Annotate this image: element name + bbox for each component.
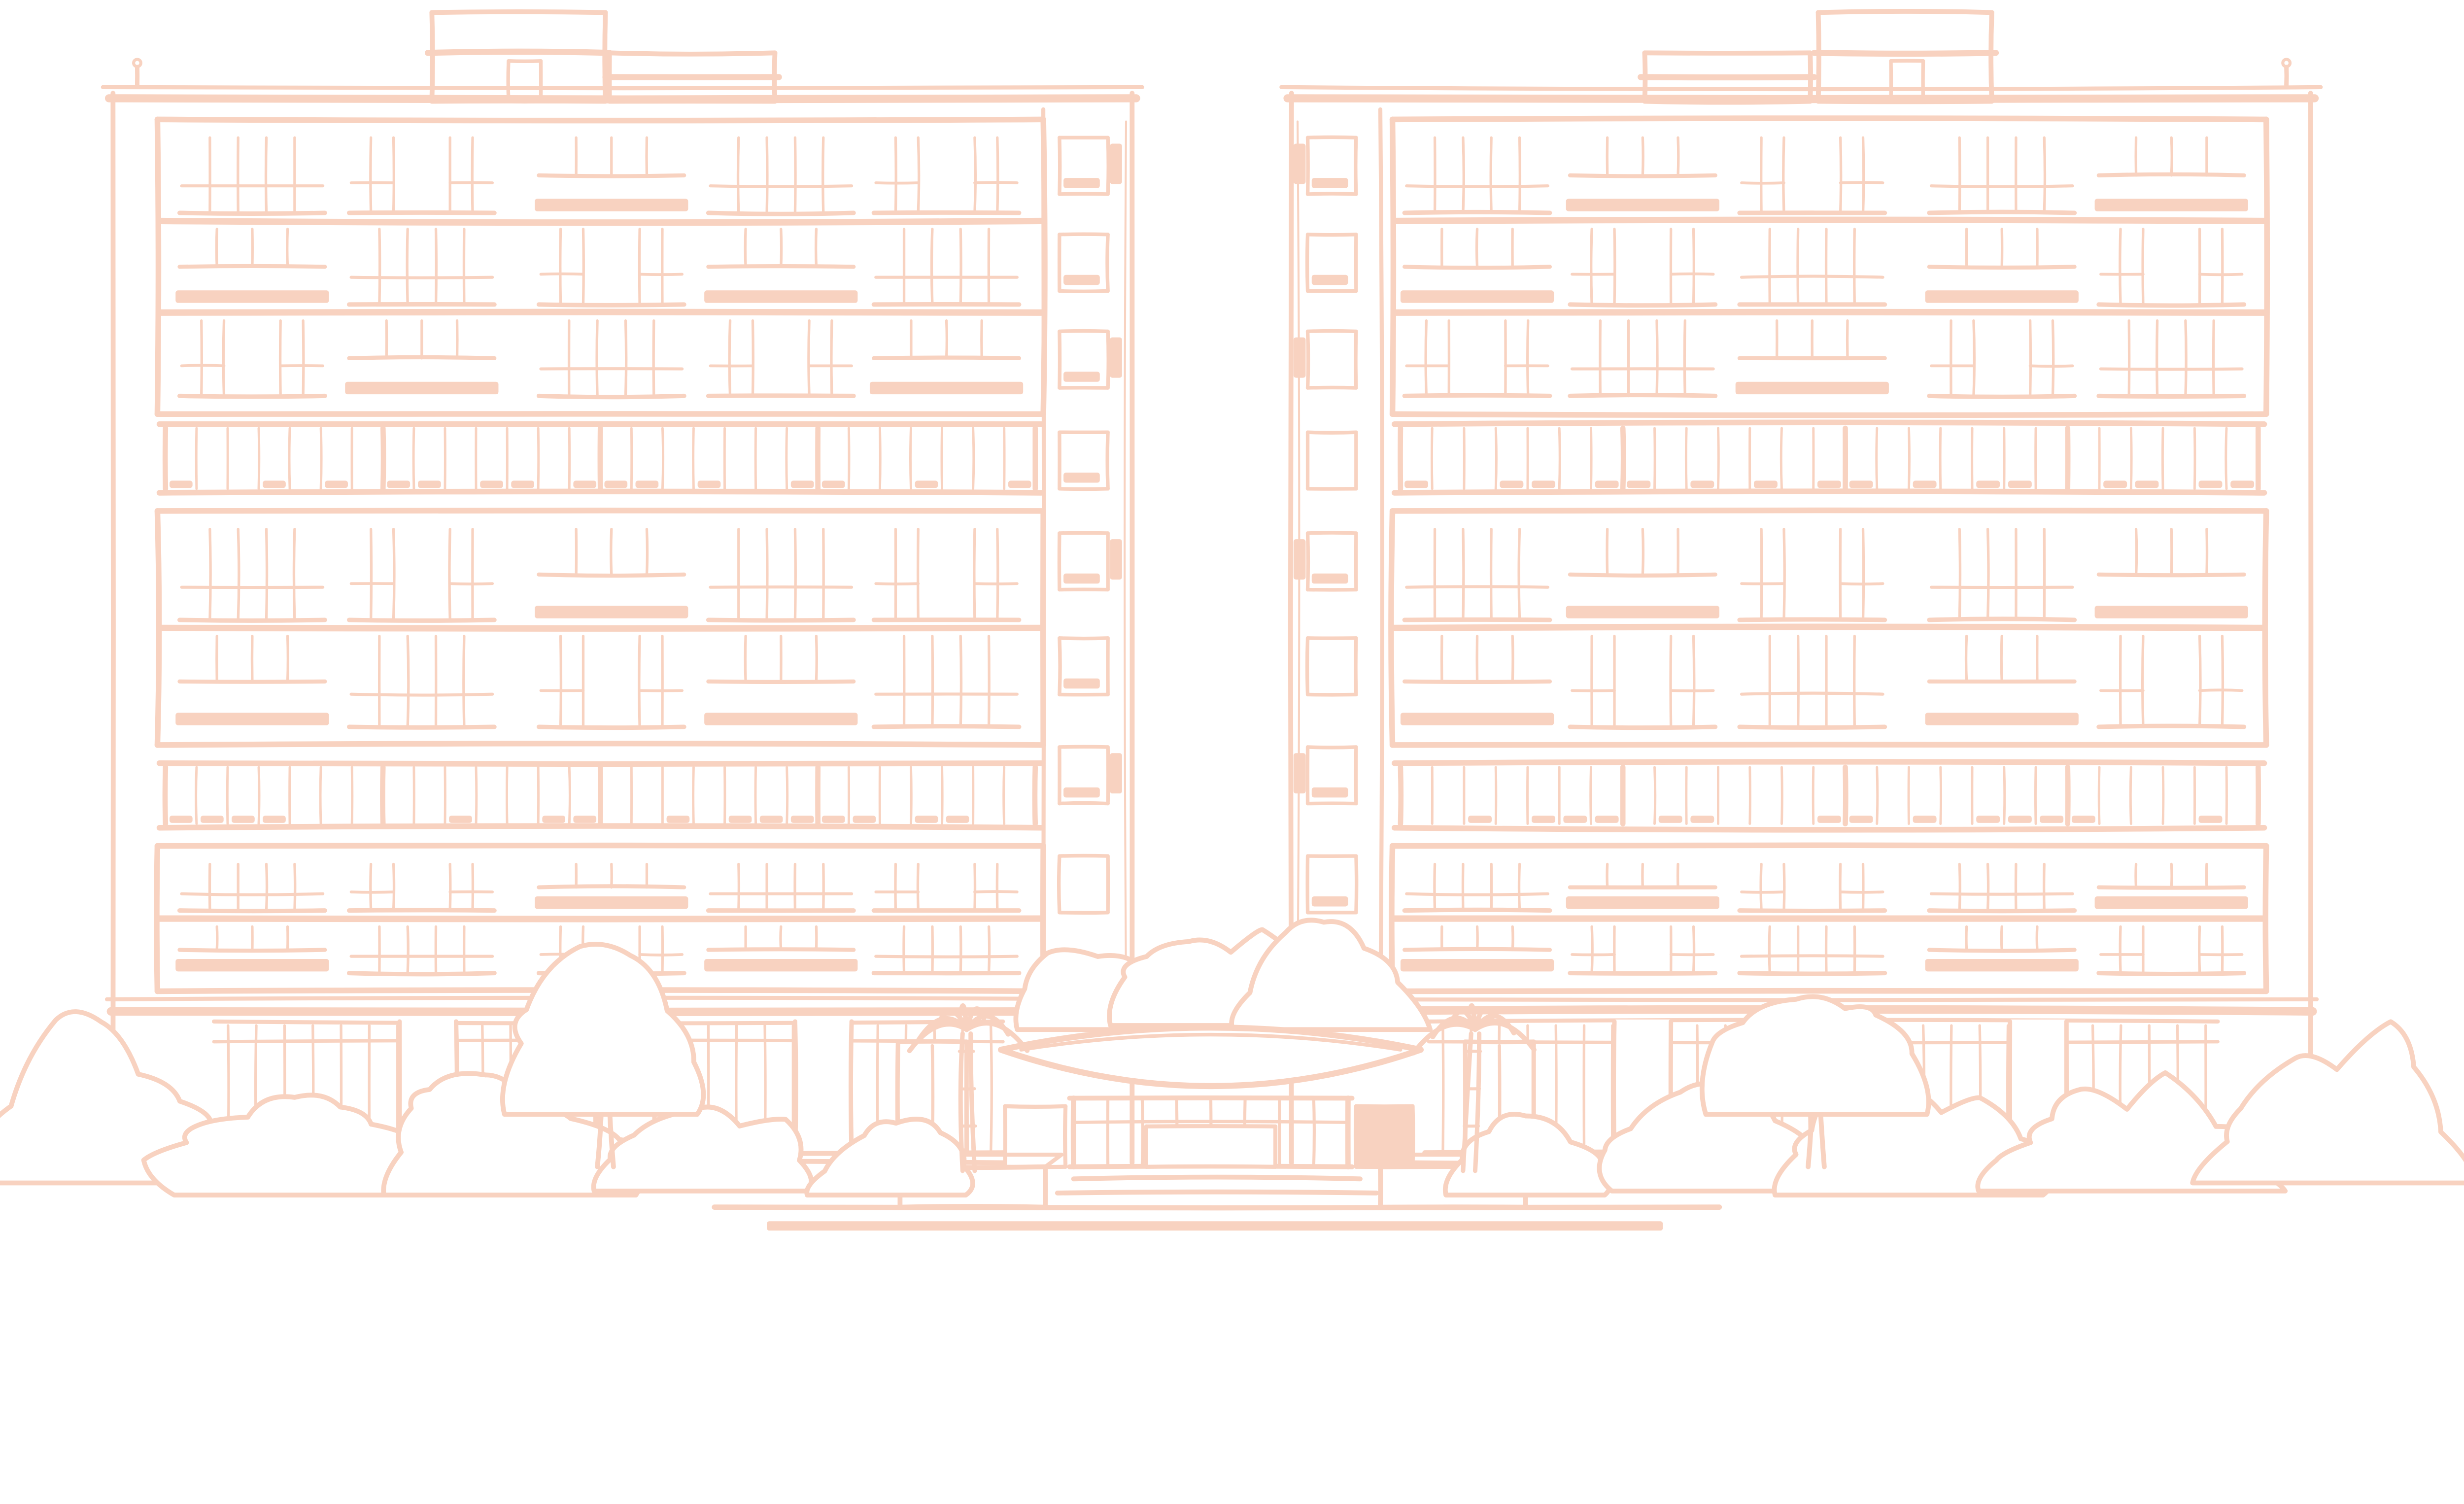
- illustration-page: [0, 0, 2464, 1232]
- walkway-bar: [767, 1221, 1663, 1231]
- apartment-buildings-illustration: [0, 0, 2464, 1232]
- walkway: [715, 1207, 1719, 1208]
